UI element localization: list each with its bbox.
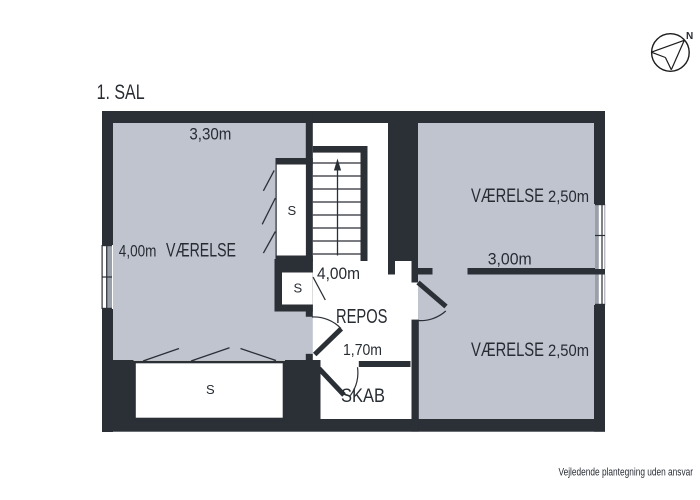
svg-text:1. SAL: 1. SAL — [97, 81, 145, 104]
svg-text:1,70m: 1,70m — [343, 342, 382, 359]
svg-text:S: S — [288, 203, 297, 218]
svg-text:Vejledende plantegning uden an: Vejledende plantegning uden ansvar — [559, 467, 694, 479]
svg-text:VÆRELSE: VÆRELSE — [471, 185, 544, 207]
svg-text:S: S — [206, 382, 215, 397]
svg-text:SKAB: SKAB — [341, 385, 385, 407]
svg-text:3,00m: 3,00m — [488, 249, 532, 268]
svg-text:VÆRELSE: VÆRELSE — [166, 240, 236, 262]
svg-text:4,00m: 4,00m — [119, 242, 157, 261]
svg-text:S: S — [294, 281, 303, 296]
svg-text:3,30m: 3,30m — [189, 125, 231, 144]
svg-text:2,50m: 2,50m — [548, 187, 589, 206]
svg-text:VÆRELSE: VÆRELSE — [471, 339, 544, 361]
svg-text:2,50m: 2,50m — [548, 341, 589, 360]
svg-text:N: N — [686, 31, 693, 42]
svg-text:4,00m: 4,00m — [317, 264, 360, 283]
svg-text:REPOS: REPOS — [336, 306, 388, 328]
